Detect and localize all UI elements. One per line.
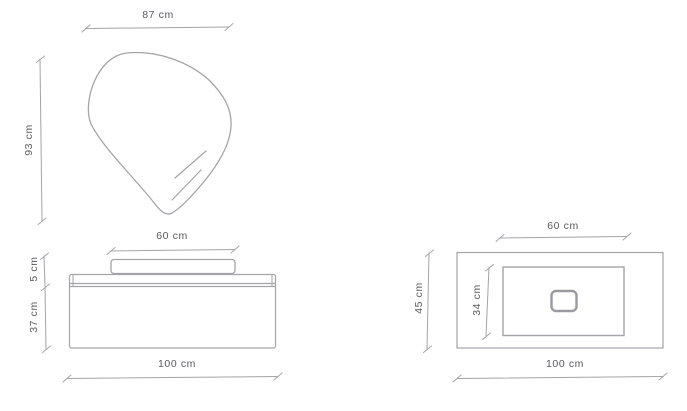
- mirror-reflection-lines: [172, 151, 206, 200]
- cabinet-height-label: 37 cm: [28, 301, 40, 333]
- cabinet-front-outline: [70, 275, 276, 349]
- countertop-depth-label: 45 cm: [413, 282, 425, 314]
- mirror-outline: [88, 53, 231, 214]
- technical-drawing: [0, 0, 687, 411]
- mirror-height-label: 93 cm: [23, 124, 35, 156]
- basin-width-front-label: 60 cm: [156, 230, 188, 242]
- basin-depth-label: 34 cm: [471, 284, 483, 316]
- basin-front-outline: [111, 260, 235, 274]
- mirror-width-label: 87 cm: [142, 9, 174, 21]
- dimension-lines: [37, 24, 668, 383]
- dimension-line-countertop-depth: [424, 250, 434, 353]
- dimension-line-basin-width-top: [496, 233, 631, 242]
- total-width-top-label: 100 cm: [546, 358, 584, 370]
- dimension-line-basin-and-cabinet-height: [41, 253, 51, 353]
- dimension-line-mirror-height: [37, 56, 47, 225]
- dimension-line-mirror-width: [82, 24, 233, 33]
- basin-width-top-label: 60 cm: [547, 220, 579, 232]
- basin-height-label: 5 cm: [28, 256, 40, 281]
- total-width-front-label: 100 cm: [158, 358, 196, 370]
- dimension-line-total-width-front: [63, 373, 282, 382]
- drain-outline: [552, 291, 577, 311]
- dimension-line-total-width-top: [453, 373, 667, 382]
- dimension-diagram: 87 cm 93 cm 60 cm 5 cm 37 cm 100 cm 60 c…: [0, 0, 687, 411]
- dimension-line-basin-depth: [483, 265, 494, 340]
- dimension-line-basin-width-front: [107, 246, 239, 255]
- basin-top-view-outline: [503, 267, 624, 336]
